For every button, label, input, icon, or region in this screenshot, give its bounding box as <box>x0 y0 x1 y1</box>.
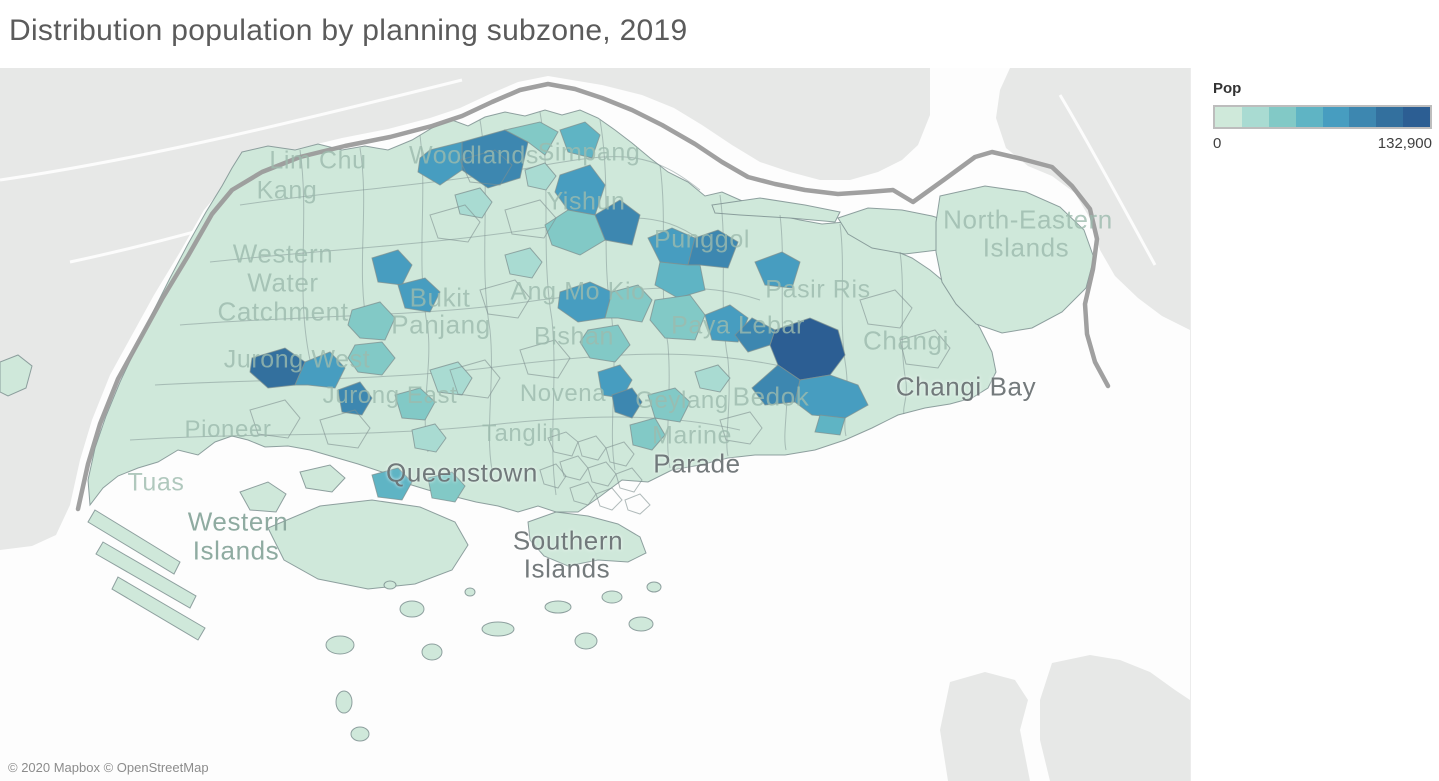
legend-title: Pop <box>1213 80 1432 97</box>
legend-swatch <box>1376 107 1403 127</box>
page-title: Distribution population by planning subz… <box>9 14 688 48</box>
legend-swatch <box>1215 107 1242 127</box>
legend-swatch <box>1242 107 1269 127</box>
legend-swatch <box>1403 107 1430 127</box>
legend-swatch <box>1296 107 1323 127</box>
legend-swatch <box>1269 107 1296 127</box>
map-panel[interactable]: Lim ChuKangWoodlandsSimpangYishunPunggol… <box>0 68 1191 781</box>
legend-gradient <box>1213 105 1432 129</box>
legend-min: 0 <box>1213 135 1221 152</box>
legend-scale: 0 132,900 <box>1213 135 1432 152</box>
map-canvas <box>0 68 1190 781</box>
legend-swatch <box>1323 107 1350 127</box>
page: Distribution population by planning subz… <box>0 0 1439 781</box>
legend: Pop 0 132,900 <box>1213 80 1432 152</box>
legend-swatch <box>1349 107 1376 127</box>
map-attribution: © 2020 Mapbox © OpenStreetMap <box>8 760 209 775</box>
legend-max: 132,900 <box>1378 135 1432 152</box>
